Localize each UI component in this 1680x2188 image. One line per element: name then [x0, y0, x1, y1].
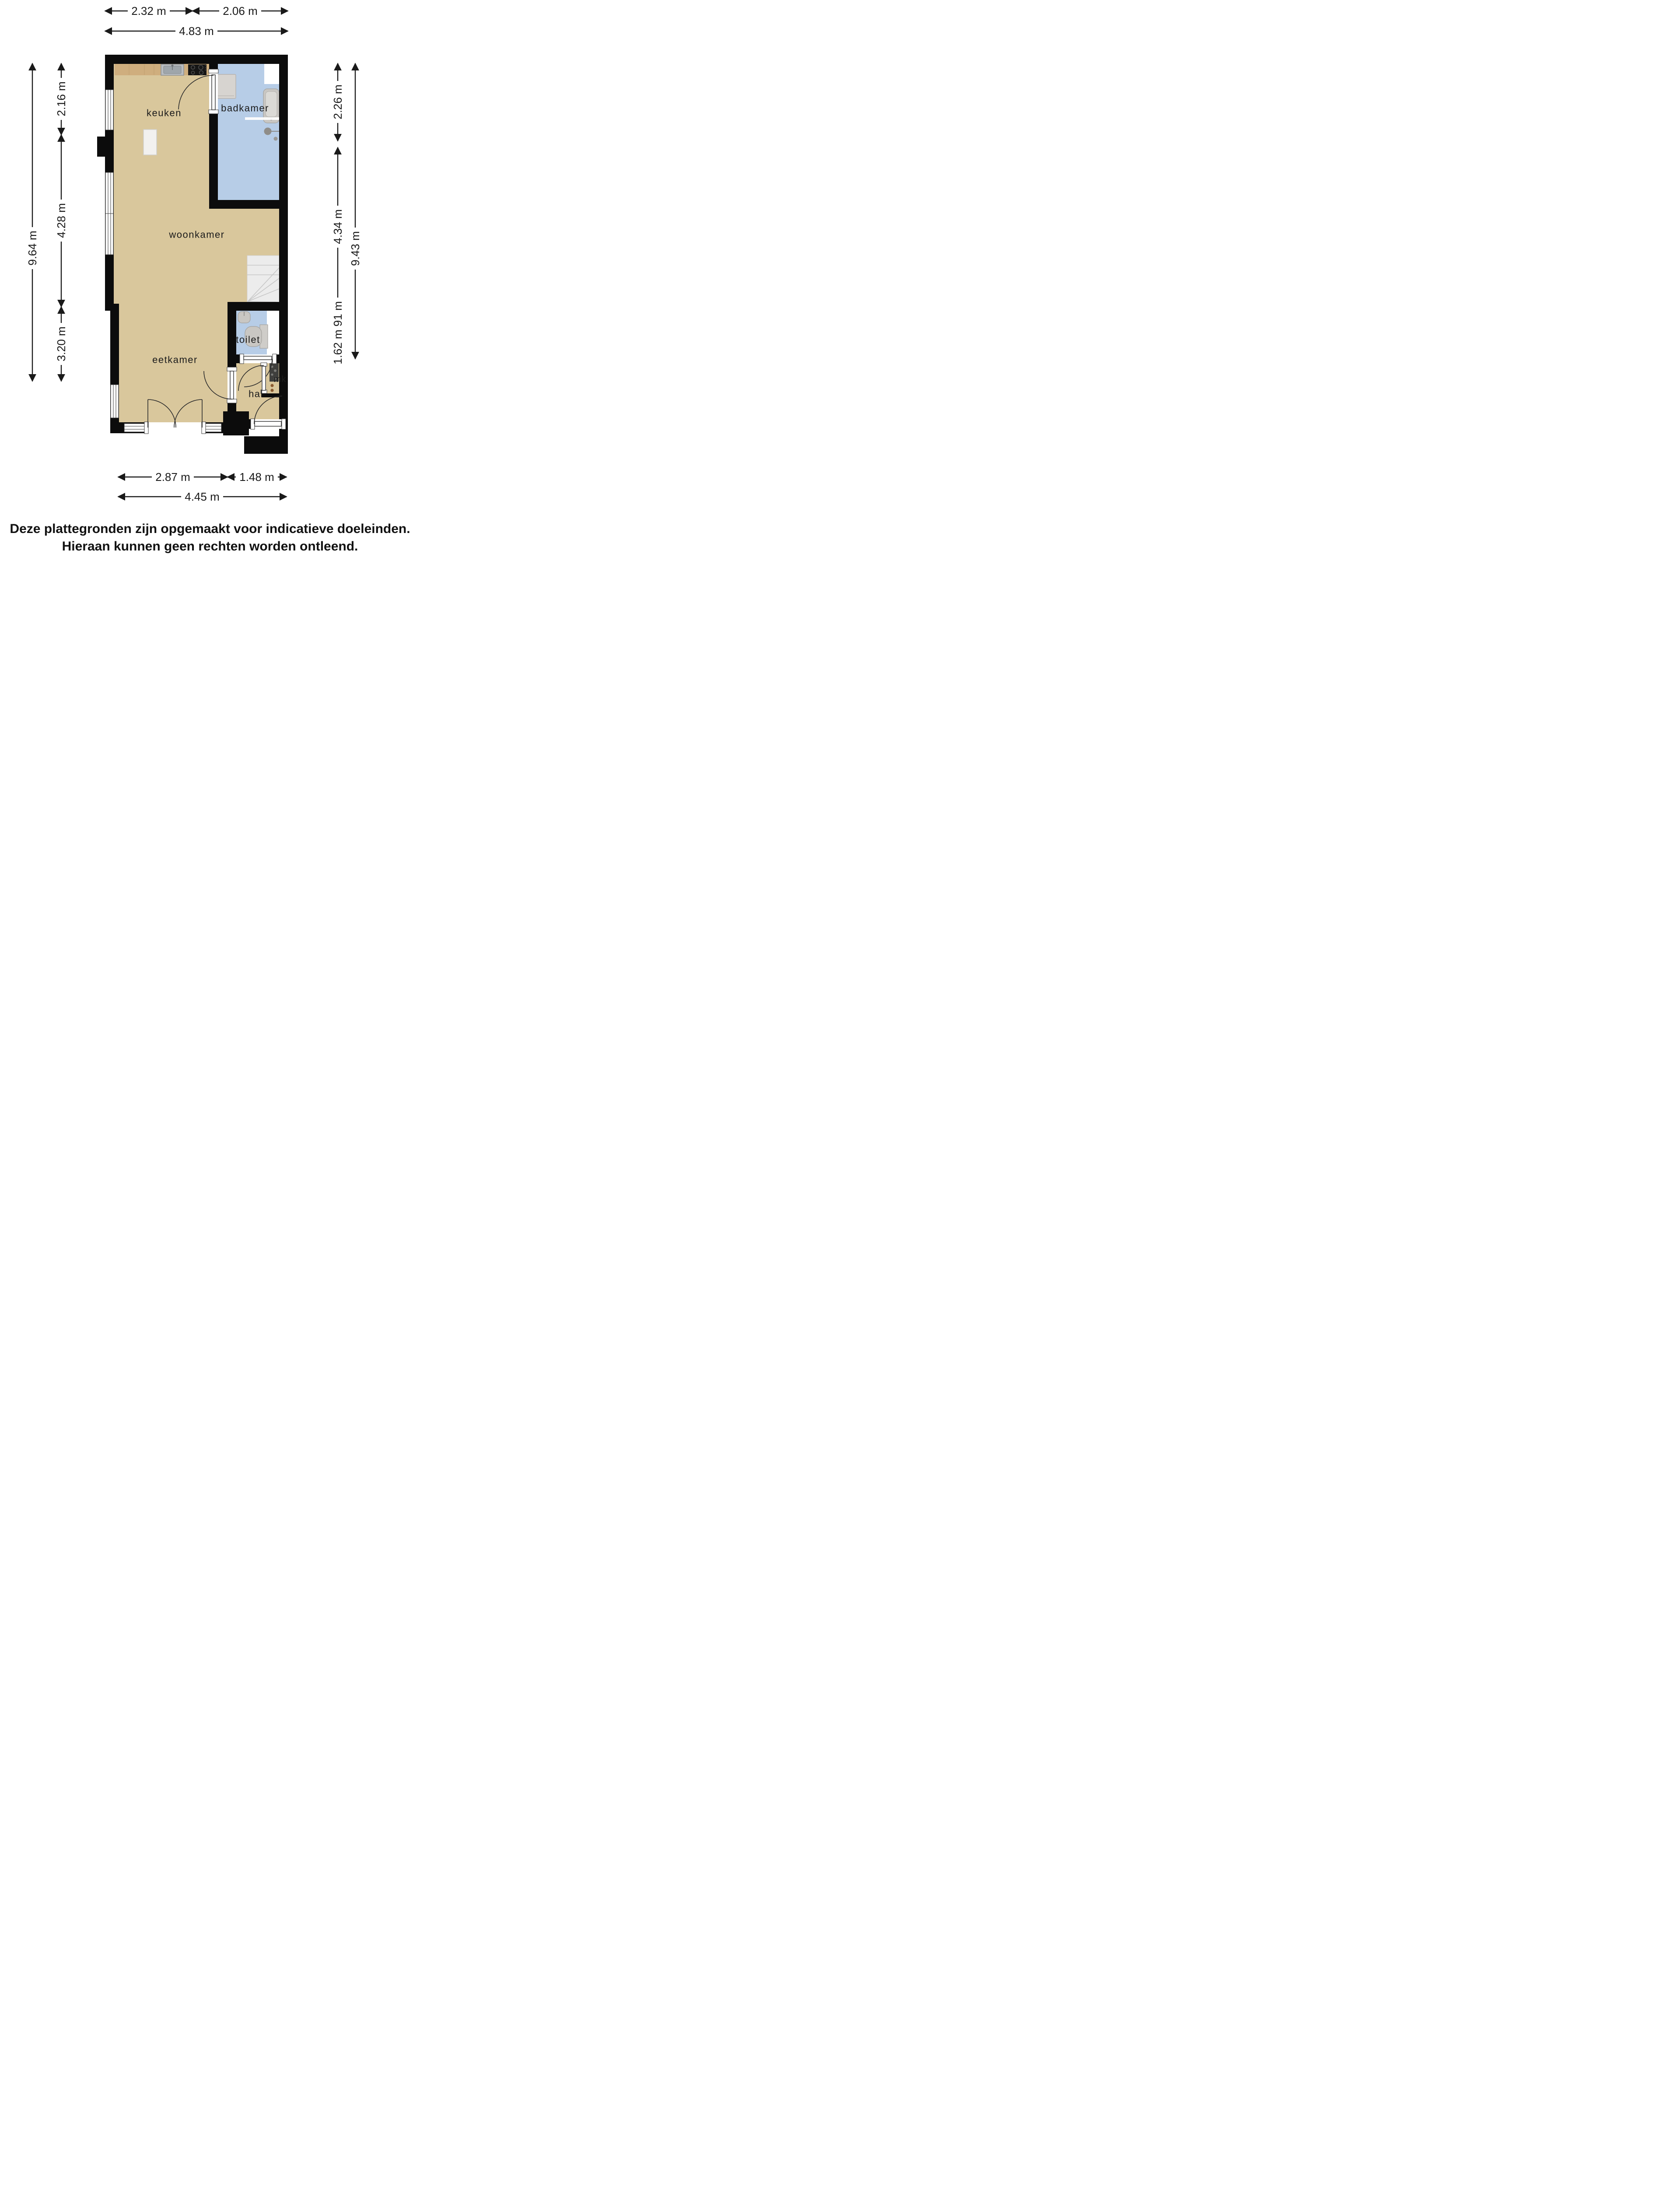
dim-right-total: 9.43 m	[348, 63, 362, 359]
dim-left-segment-1: 4.28 m	[54, 135, 68, 307]
svg-text:1.62 m: 1.62 m	[331, 330, 344, 365]
dim-bottom-total: 4.45 m	[118, 490, 287, 504]
stove-icon	[188, 64, 206, 75]
disclaimer-line-1: Deze plattegronden zijn opgemaakt voor i…	[0, 522, 420, 536]
dim-left-segment-0: 2.16 m	[54, 63, 68, 135]
stairs	[247, 256, 279, 302]
svg-text:3.20 m: 3.20 m	[55, 326, 68, 361]
badkamer-label: badkamer	[221, 103, 269, 114]
kitchen-sink-icon	[161, 64, 184, 75]
dim-top-total: 4.83 m	[105, 24, 288, 38]
shower-tray	[264, 64, 279, 84]
toilet-label: toilet	[236, 334, 260, 345]
svg-text:4.34 m: 4.34 m	[331, 209, 344, 244]
svg-text:4.83 m: 4.83 m	[179, 25, 214, 38]
floorplan-page: keuken badkamer woonkamer toilet eetkame…	[0, 0, 420, 560]
dim-bottom-segment-1: 1.48 m	[227, 470, 287, 484]
svg-text:4.28 m: 4.28 m	[55, 203, 68, 238]
svg-text:2.87 m: 2.87 m	[155, 470, 190, 484]
window-keuken-left	[105, 90, 113, 130]
dim-bottom-segment-0: 2.87 m	[118, 470, 227, 484]
disclaimer-line-2: Hieraan kunnen geen rechten worden ontle…	[0, 539, 420, 554]
dim-top-segment-1: 2.06 m	[192, 4, 288, 18]
svg-text:1.48 m: 1.48 m	[239, 470, 274, 484]
keuken-label: keuken	[147, 108, 182, 119]
floorplan-canvas: keuken badkamer woonkamer toilet eetkame…	[0, 0, 420, 560]
svg-text:4.45 m: 4.45 m	[185, 490, 220, 503]
dim-right-segment-0: 2.26 m	[331, 63, 345, 141]
hal-label: hal	[248, 389, 263, 400]
svg-text:9.64 m: 9.64 m	[26, 231, 39, 266]
svg-text:2.16 m: 2.16 m	[55, 81, 68, 116]
window-eetkamer-bottom-left	[124, 424, 144, 432]
dim-left-total: 9.64 m	[25, 63, 39, 381]
mk-label: mk	[274, 375, 287, 384]
window-woonkamer-left	[105, 172, 113, 255]
dim-right-segment-1: 4.34 m	[331, 147, 345, 306]
svg-text:2.32 m: 2.32 m	[131, 4, 166, 18]
toilet-niche	[267, 311, 279, 354]
dim-right-segment-3: 1.62 m	[331, 326, 345, 368]
fridge-icon	[143, 130, 157, 155]
eetkamer-label: eetkamer	[152, 354, 198, 365]
dim-left-segment-2: 3.20 m	[54, 307, 68, 381]
window-eetkamer-left	[111, 385, 119, 418]
svg-text:9.43 m: 9.43 m	[349, 231, 362, 266]
window-eetkamer-bottom-right	[206, 424, 221, 432]
svg-text:2.06 m: 2.06 m	[223, 4, 258, 18]
bathroom-shelf	[245, 117, 279, 120]
woonkamer-label: woonkamer	[168, 229, 224, 240]
svg-text:2.26 m: 2.26 m	[331, 84, 344, 119]
toilet-sink-icon	[238, 312, 250, 323]
dim-top-segment-0: 2.32 m	[105, 4, 192, 18]
